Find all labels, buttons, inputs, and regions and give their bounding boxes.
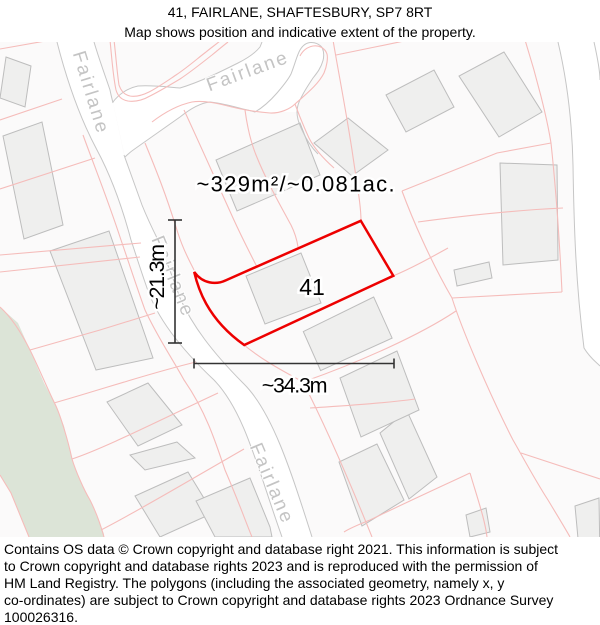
svg-text:~21.3m: ~21.3m bbox=[145, 245, 169, 310]
svg-text:41: 41 bbox=[299, 274, 325, 300]
svg-text:~329m²/~0.081ac.: ~329m²/~0.081ac. bbox=[197, 172, 396, 197]
svg-text:~34.3m: ~34.3m bbox=[262, 374, 327, 398]
